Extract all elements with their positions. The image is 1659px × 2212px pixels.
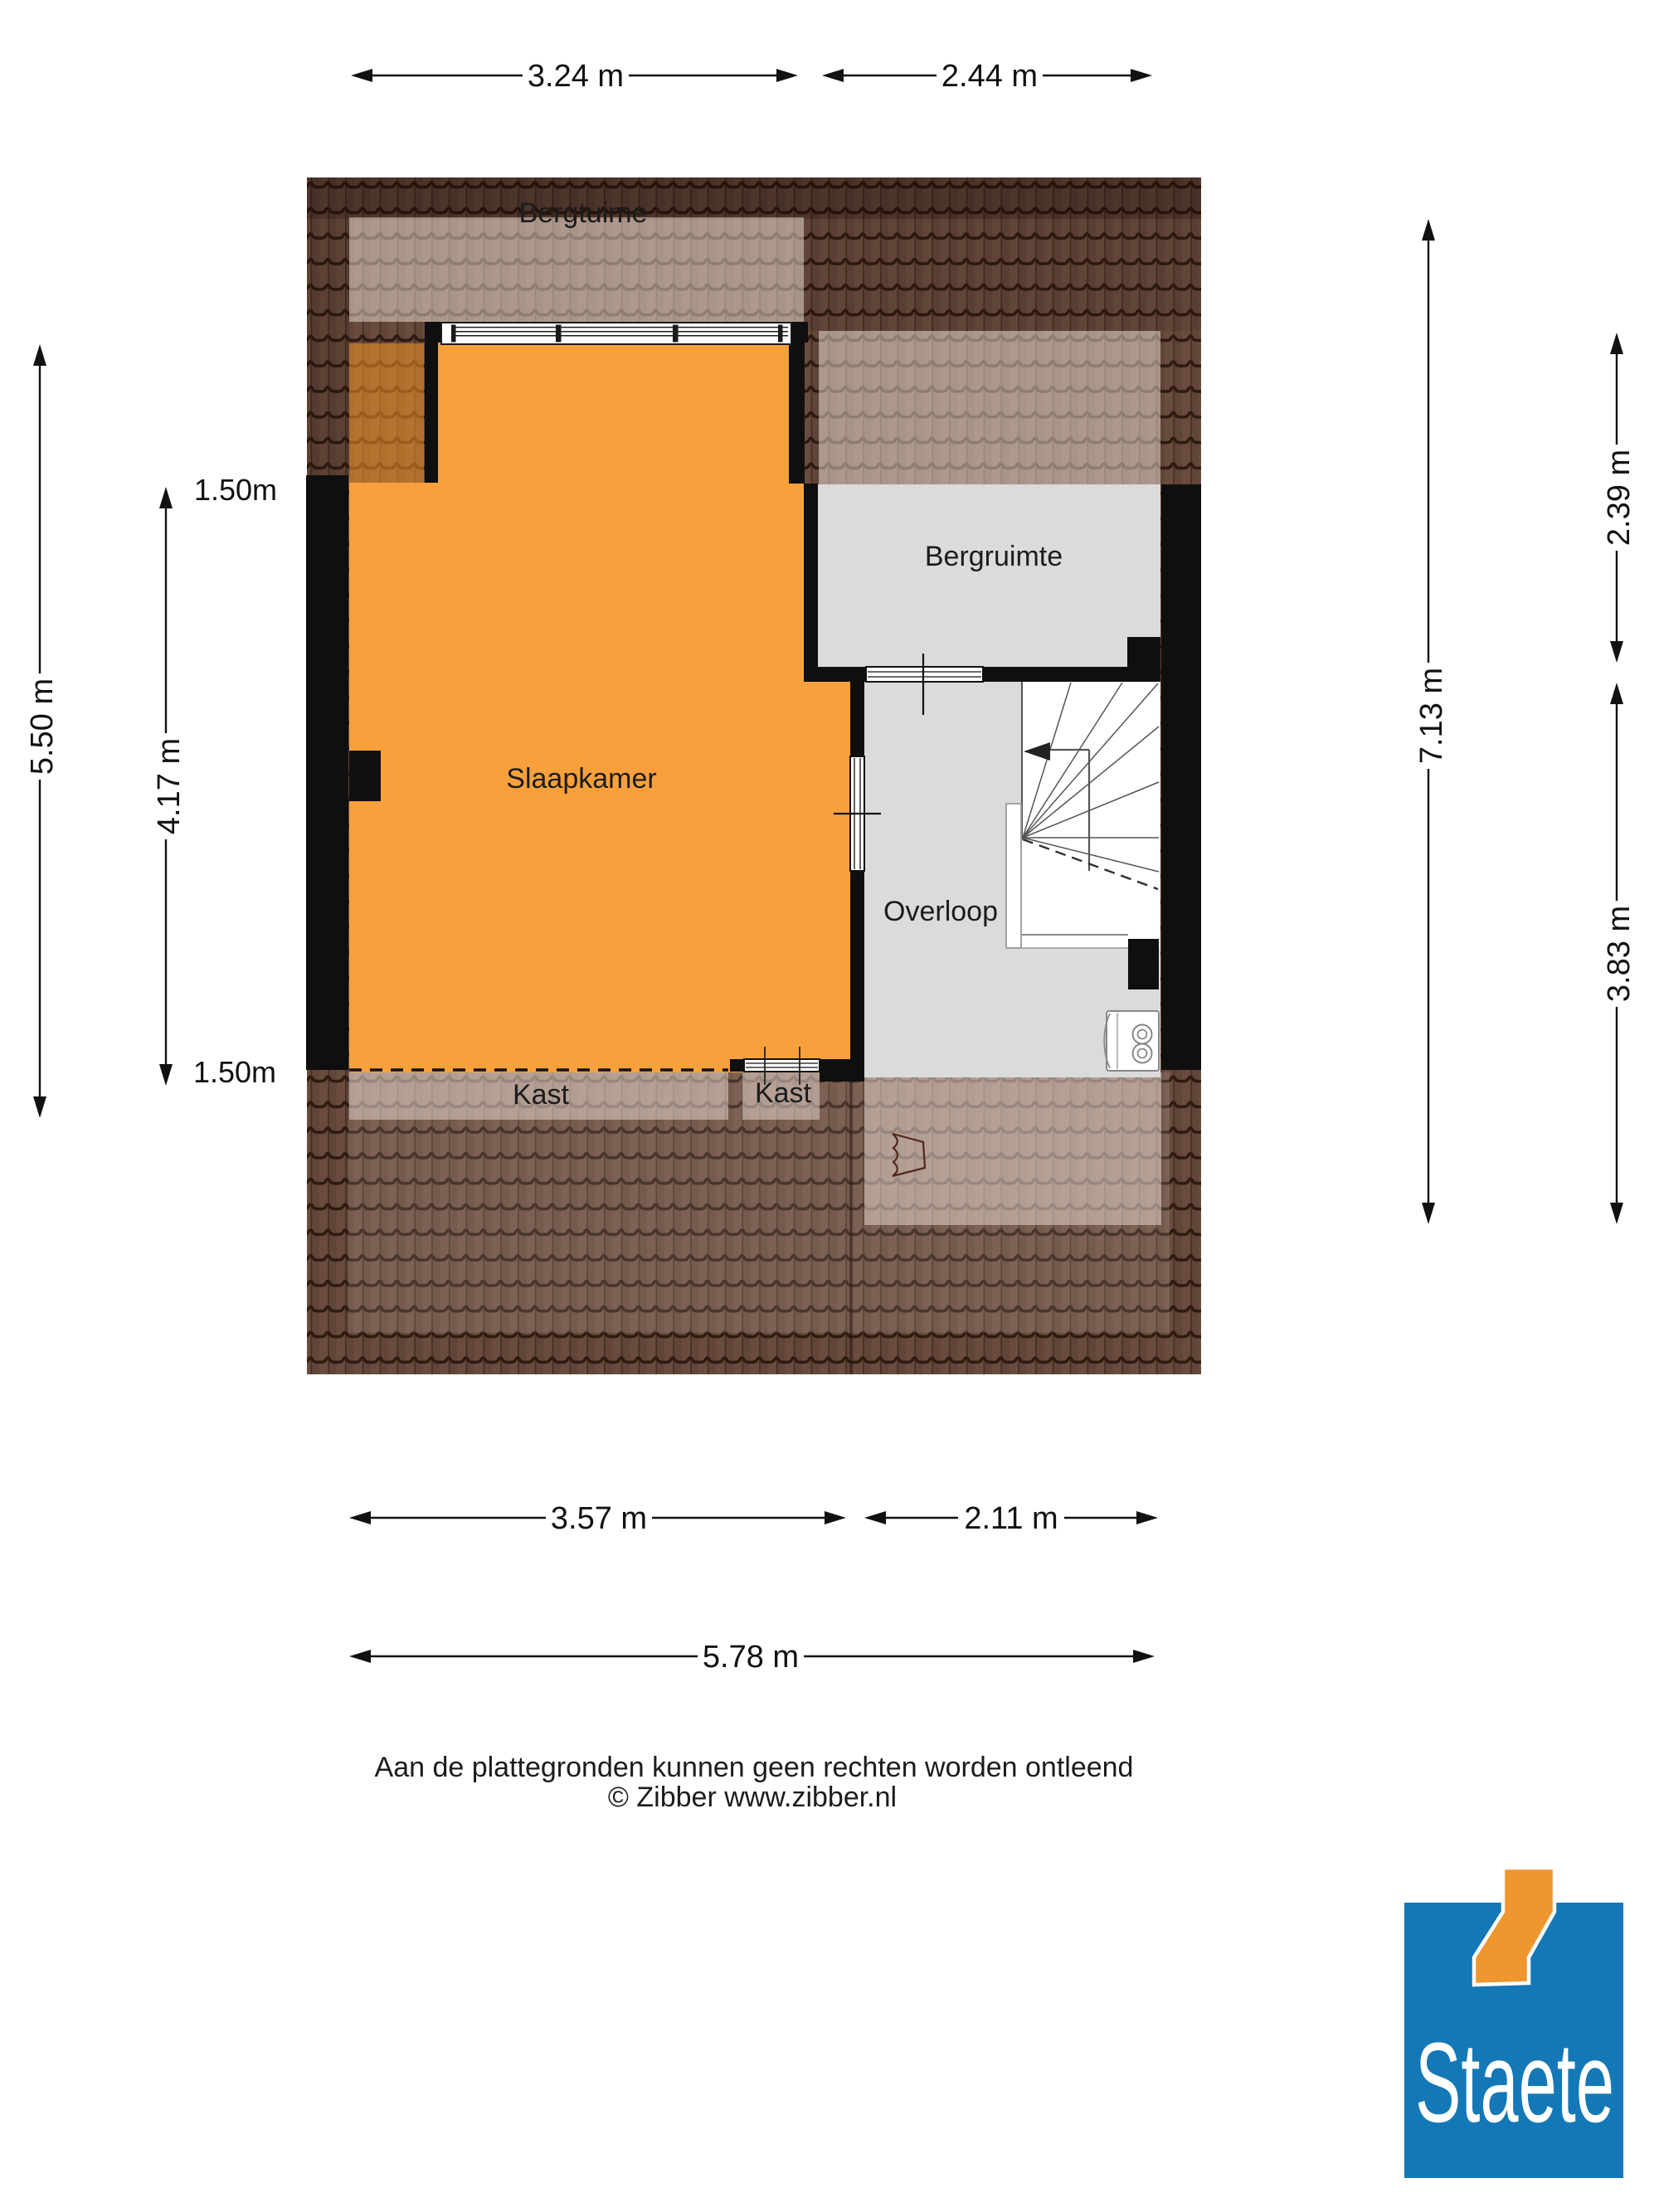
svg-text:4.17 m: 4.17 m xyxy=(152,738,187,834)
svg-text:3.24 m: 3.24 m xyxy=(528,59,624,94)
svg-text:2.11 m: 2.11 m xyxy=(964,1501,1058,1536)
svg-text:1.50m: 1.50m xyxy=(194,473,277,507)
svg-text:Kast: Kast xyxy=(513,1079,570,1111)
svg-text:3.83 m: 3.83 m xyxy=(1602,906,1637,1002)
svg-text:7.13 m: 7.13 m xyxy=(1414,668,1449,764)
svg-text:Bergruimte: Bergruimte xyxy=(925,541,1063,572)
svg-text:1.50m: 1.50m xyxy=(193,1055,276,1089)
svg-text:3.57 m: 3.57 m xyxy=(551,1501,647,1536)
svg-text:Kast: Kast xyxy=(755,1077,812,1109)
svg-text:Bergtuime: Bergtuime xyxy=(519,197,648,229)
svg-text:Staete: Staete xyxy=(1415,2020,1614,2146)
svg-text:2.44 m: 2.44 m xyxy=(941,59,1038,94)
svg-text:Slaapkamer: Slaapkamer xyxy=(506,763,656,795)
svg-text:Overloop: Overloop xyxy=(883,896,998,927)
svg-text:5.78 m: 5.78 m xyxy=(703,1640,799,1675)
svg-text:2.39 m: 2.39 m xyxy=(1602,450,1637,546)
svg-text:5.50 m: 5.50 m xyxy=(25,678,60,775)
svg-text:© Zibber www.zibber.nl: © Zibber www.zibber.nl xyxy=(608,1782,897,1813)
svg-text:Aan de plattegronden kunnen ge: Aan de plattegronden kunnen geen rechten… xyxy=(375,1752,1134,1783)
